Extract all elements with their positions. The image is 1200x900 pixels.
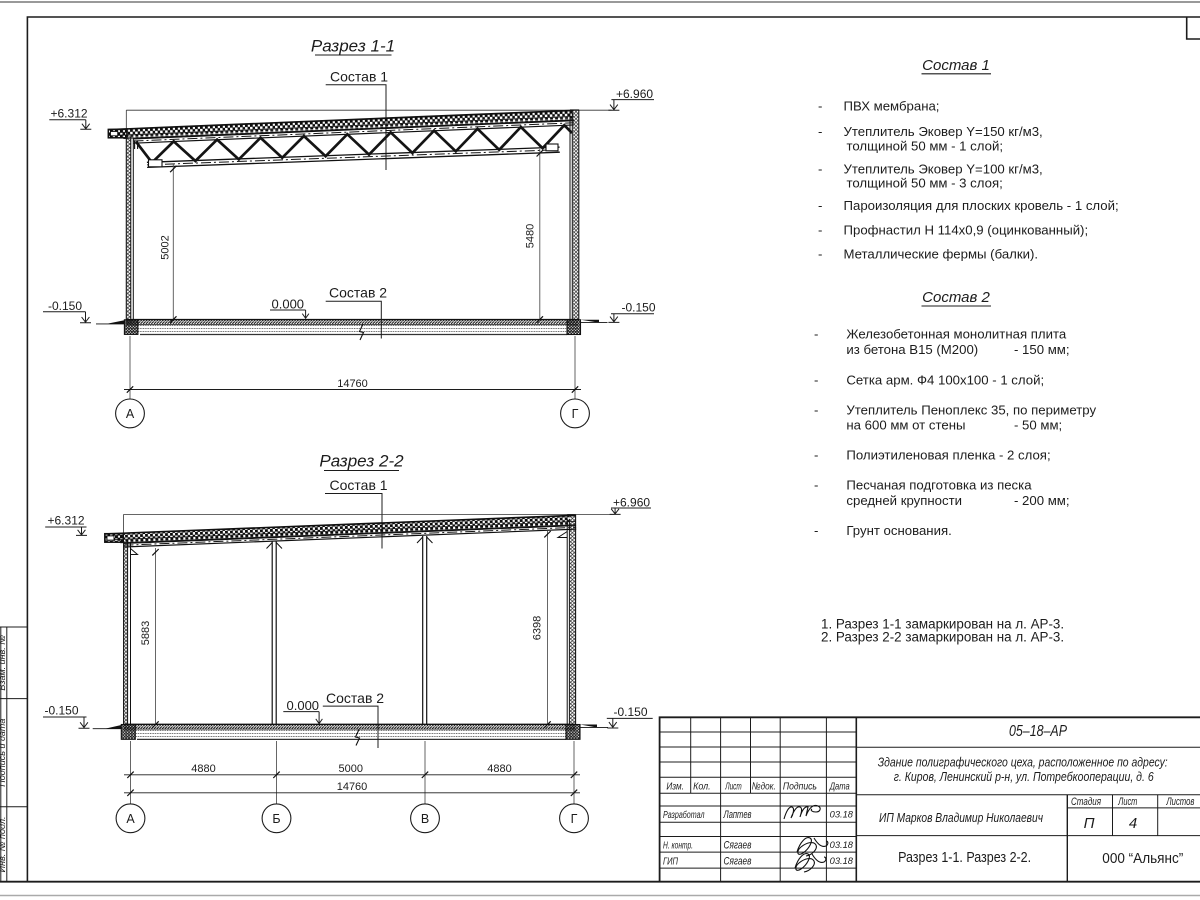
svg-text:ГИП: ГИП [663, 856, 679, 867]
svg-text:2. Разрез 2-2 замаркирован на: 2. Разрез 2-2 замаркирован на л. АР-3. [821, 630, 1064, 645]
svg-text:0.000: 0.000 [272, 296, 305, 311]
svg-text:+6.312: +6.312 [48, 513, 85, 527]
svg-text:Лист: Лист [1118, 796, 1138, 808]
svg-text:№док.: №док. [752, 780, 776, 792]
svg-text:-: - [814, 523, 818, 538]
svg-text:Утеплитель Пеноплекс 35, по пе: Утеплитель Пеноплекс 35, по периметру [846, 403, 1096, 418]
svg-text:Изм.: Изм. [666, 780, 684, 792]
svg-text:-: - [818, 198, 822, 213]
svg-text:Металлические фермы (балки).: Металлические фермы (балки). [844, 247, 1039, 262]
svg-text:толщиной 50 мм - 1 слой;: толщиной 50 мм - 1 слой; [847, 139, 1003, 154]
svg-text:Полиэтиленовая пленка - 2 слоя: Полиэтиленовая пленка - 2 слоя; [846, 448, 1050, 463]
svg-text:Утеплитель Эковер Y=100 кг/м3,: Утеплитель Эковер Y=100 кг/м3, [844, 162, 1043, 177]
svg-text:-: - [814, 373, 818, 388]
svg-text:Сягаев: Сягаев [724, 840, 752, 852]
svg-text:- 200 мм;: - 200 мм; [1014, 493, 1070, 508]
svg-text:г. Киров, Ленинский р-н, ул.: г. Киров, Ленинский р-н, ул. Потребкоопе… [894, 769, 1155, 784]
svg-text:Разрез 2-2: Разрез 2-2 [319, 452, 404, 471]
svg-text:-: - [814, 403, 818, 418]
svg-text:Сетка арм. Ф4 100х100 - 1 слой: Сетка арм. Ф4 100х100 - 1 слой; [846, 373, 1044, 388]
svg-text:-: - [818, 247, 822, 262]
svg-text:03.18: 03.18 [830, 856, 854, 866]
svg-text:- 150 мм;: - 150 мм; [1014, 342, 1070, 357]
svg-text:Здание полиграфического цеха,: Здание полиграфического цеха, расположен… [878, 754, 1168, 769]
svg-text:Взам. инв. №: Взам. инв. № [0, 635, 7, 691]
svg-text:4880: 4880 [487, 763, 511, 775]
svg-text:-: - [818, 223, 822, 238]
svg-text:Кол.: Кол. [693, 780, 711, 792]
svg-text:-: - [818, 124, 822, 139]
svg-text:из бетона В15 (М200): из бетона В15 (М200) [846, 342, 978, 357]
svg-text:Г: Г [571, 812, 578, 826]
svg-text:6398: 6398 [532, 616, 544, 640]
svg-text:Состав 1: Состав 1 [330, 69, 388, 85]
svg-text:Профнастил Н 114х0,9 (оцинкова: Профнастил Н 114х0,9 (оцинкованный); [844, 223, 1089, 238]
svg-text:Состав 2: Состав 2 [326, 690, 384, 706]
svg-text:-0.150: -0.150 [48, 299, 82, 313]
svg-text:03.18: 03.18 [830, 840, 854, 850]
svg-text:Сягаев: Сягаев [724, 855, 752, 867]
svg-text:4: 4 [1129, 815, 1137, 832]
svg-text:Стадия: Стадия [1071, 796, 1101, 808]
svg-text:-: - [814, 448, 818, 463]
svg-text:+6.960: +6.960 [616, 87, 653, 101]
svg-text:А: А [126, 812, 135, 826]
svg-text:-: - [814, 327, 818, 342]
svg-text:Грунт основания.: Грунт основания. [846, 523, 951, 538]
svg-text:-0.150: -0.150 [45, 704, 79, 718]
svg-text:Состав 1: Состав 1 [922, 57, 990, 74]
svg-text:Песчаная подготовка из песка: Песчаная подготовка из песка [846, 478, 1032, 493]
svg-text:Н. контр.: Н. контр. [663, 841, 693, 852]
svg-text:Разрез 1-1: Разрез 1-1 [311, 37, 395, 56]
svg-text:Лаптев: Лаптев [723, 809, 752, 821]
svg-text:Состав 2: Состав 2 [922, 289, 990, 306]
svg-text:+6.960: +6.960 [613, 495, 650, 509]
svg-text:средней крупности: средней крупности [846, 493, 962, 508]
svg-text:4880: 4880 [191, 763, 215, 775]
svg-text:ПВХ мембрана;: ПВХ мембрана; [844, 99, 940, 114]
svg-text:-: - [814, 478, 818, 493]
svg-text:Разрез 1-1. Разрез 2-2.: Разрез 1-1. Разрез 2-2. [898, 850, 1031, 866]
svg-text:Подпись и дата: Подпись и дата [0, 719, 7, 787]
svg-text:14760: 14760 [337, 378, 368, 390]
svg-text:ИП Марков Владимир Николаевич: ИП Марков Владимир Николаевич [879, 810, 1043, 825]
svg-text:на 600 мм от стены: на 600 мм от стены [846, 418, 965, 433]
svg-text:+6.312: +6.312 [51, 107, 88, 121]
svg-text:Разработал: Разработал [663, 809, 705, 821]
svg-text:-: - [818, 99, 822, 114]
svg-text:Пароизоляция для плоских крове: Пароизоляция для плоских кровель - 1 сло… [844, 198, 1119, 213]
svg-text:Утеплитель Эковер Y=150 кг/м3,: Утеплитель Эковер Y=150 кг/м3, [844, 124, 1043, 139]
svg-text:В: В [421, 812, 429, 826]
svg-text:Лист: Лист [725, 780, 742, 792]
svg-text:-0.150: -0.150 [614, 705, 648, 719]
svg-text:Листов: Листов [1166, 796, 1195, 808]
svg-text:14760: 14760 [337, 781, 368, 793]
svg-text:П: П [1084, 815, 1095, 832]
svg-text:Г: Г [572, 407, 579, 421]
svg-text:А: А [126, 407, 135, 421]
svg-text:Железобетонная монолитная пли: Железобетонная монолитная плита [846, 327, 1066, 342]
svg-text:Состав 2: Состав 2 [329, 285, 387, 301]
svg-text:- 50 мм;: - 50 мм; [1014, 418, 1062, 433]
svg-text:05–18–АР: 05–18–АР [1009, 723, 1068, 740]
svg-text:5002: 5002 [160, 235, 172, 259]
svg-text:Инв. № подл.: Инв. № подл. [0, 816, 7, 872]
svg-text:Состав 1: Состав 1 [330, 477, 388, 493]
svg-text:03.18: 03.18 [830, 810, 854, 820]
svg-text:5883: 5883 [140, 621, 152, 645]
svg-text:-0.150: -0.150 [622, 301, 656, 315]
svg-text:Подпись: Подпись [783, 780, 817, 792]
svg-text:5000: 5000 [339, 763, 363, 775]
svg-text:5480: 5480 [525, 224, 537, 248]
svg-text:000 “Альянс”: 000 “Альянс” [1102, 851, 1183, 867]
svg-text:толщиной 50 мм - 3 слоя;: толщиной 50 мм - 3 слоя; [847, 176, 1003, 191]
svg-text:Дата: Дата [829, 780, 850, 792]
svg-text:Б: Б [272, 812, 280, 826]
svg-text:0.000: 0.000 [287, 698, 320, 713]
svg-text:-: - [818, 162, 822, 177]
